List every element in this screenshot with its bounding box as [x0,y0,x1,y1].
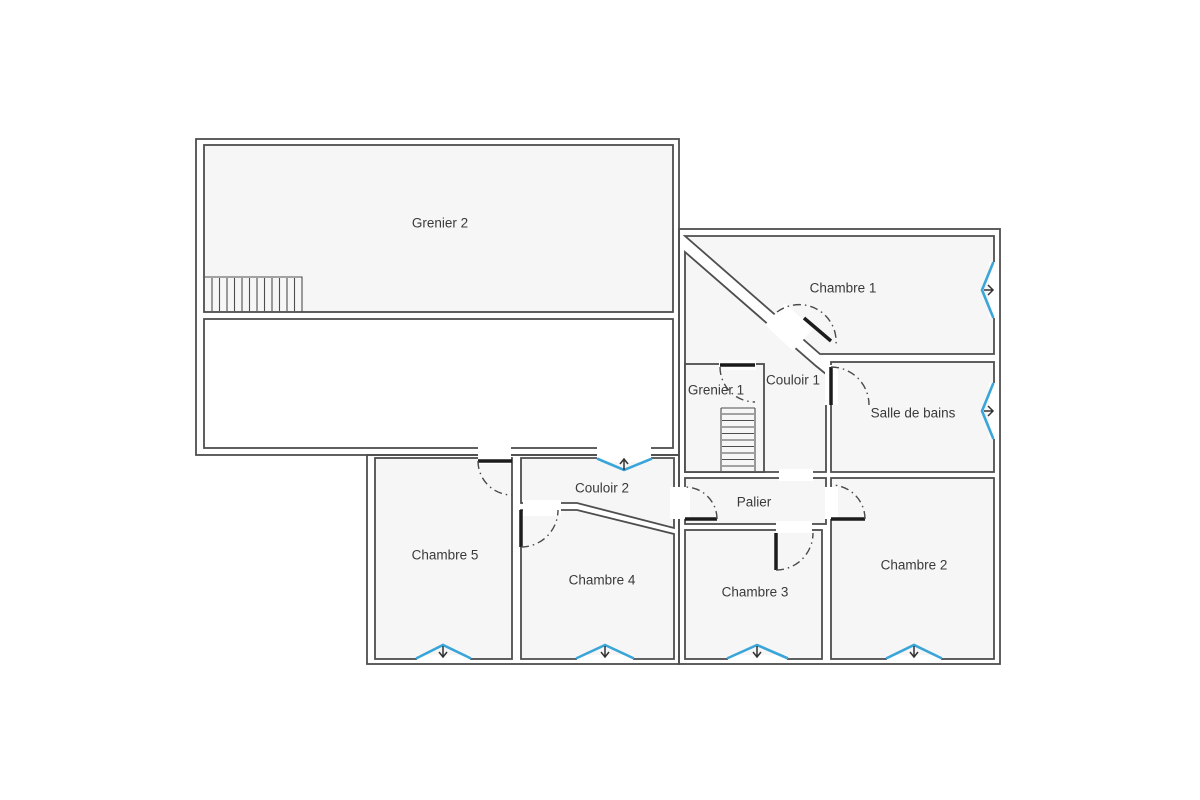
opening-palier-stairs-passage [779,469,813,481]
rooms: Grenier 2 Chambre 1 Couloir 1 Grenier 1 … [204,145,994,659]
opening-chambre-2-door [825,487,838,519]
room-chambre-3: Chambre 3 [685,530,822,659]
room-palier: Palier [685,478,826,524]
room-label-chambre-2: Chambre 2 [881,558,948,573]
floor-plan-page: Grenier 2 Chambre 1 Couloir 1 Grenier 1 … [0,0,1200,800]
room-grenier-1: Grenier 1 [685,364,764,472]
room-label-chambre-4: Chambre 4 [569,573,636,588]
room-salle-de-bains: Salle de bains [831,362,994,472]
room-label-grenier-2: Grenier 2 [412,216,468,231]
room-label-couloir-2: Couloir 2 [575,481,629,496]
room-label-chambre-1: Chambre 1 [810,281,877,296]
opening-palier-left-door [670,487,690,519]
room-label-palier: Palier [737,495,772,510]
opening-chambre-4-door [523,500,561,516]
room-shape-grenier-1 [685,364,764,472]
room-grenier-2: Grenier 2 [204,145,673,312]
room-unlabeled-void [204,319,673,448]
room-label-chambre-3: Chambre 3 [722,585,789,600]
room-label-chambre-5: Chambre 5 [412,548,479,563]
room-chambre-5: Chambre 5 [375,458,512,659]
room-chambre-4: Chambre 4 [521,510,674,659]
opening-chambre-3-door [776,521,812,533]
room-label-salle-de-bains: Salle de bains [871,406,956,421]
room-chambre-2: Chambre 2 [831,478,994,659]
floor-plan: Grenier 2 Chambre 1 Couloir 1 Grenier 1 … [0,0,1200,800]
room-label-couloir-1: Couloir 1 [766,373,820,388]
room-shape-void [204,319,673,448]
room-label-grenier-1: Grenier 1 [688,383,744,398]
